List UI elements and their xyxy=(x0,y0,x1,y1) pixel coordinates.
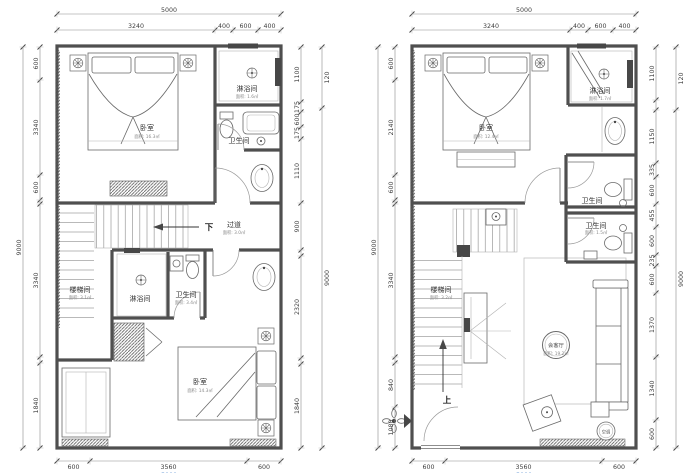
svg-text:600: 600 xyxy=(258,464,270,471)
room-label: 卫生间 xyxy=(176,290,197,299)
room-area: 面积: 16.3㎡ xyxy=(134,133,160,140)
nightstand-lamp-icon xyxy=(180,55,196,71)
svg-text:400: 400 xyxy=(218,23,230,30)
svg-text:600: 600 xyxy=(613,464,625,471)
floor-plan-page: 卧室 面积: 16.3㎡ 淋浴间 面积: 1.6㎡ 卫生间 下 过道 面积: 3… xyxy=(0,0,694,473)
svg-text:600: 600 xyxy=(649,273,656,285)
svg-text:1840: 1840 xyxy=(33,397,40,413)
nightstand-lamp-icon xyxy=(425,55,441,71)
room-label: 会客厅 xyxy=(548,341,565,349)
dim-right-chain-right: 1100115033560045560023560013701340600 xyxy=(649,45,660,451)
svg-text:175: 175 xyxy=(294,101,301,113)
svg-text:600: 600 xyxy=(67,464,79,471)
svg-text:600: 600 xyxy=(649,428,656,440)
room-area: 面积: 3.0㎡ xyxy=(223,229,246,236)
dim-top-chain-right: 3240400600400 xyxy=(410,23,639,34)
left-unit-plan: 卧室 面积: 16.3㎡ 淋浴间 面积: 1.6㎡ 卫生间 下 过道 面积: 3… xyxy=(16,7,331,473)
room-area: 面积: 3.1㎡ xyxy=(69,294,92,301)
room-area: 面积: 1.7㎡ xyxy=(589,95,612,102)
entry-marker-icon xyxy=(383,410,413,433)
nightstand-lamp-icon xyxy=(532,55,548,71)
svg-text:600: 600 xyxy=(294,113,301,125)
room-area: 面积: 14.3㎡ xyxy=(187,387,213,394)
left-toilet-mid xyxy=(170,255,199,279)
dim-left-chain-left: 600334060033401840 xyxy=(33,45,44,451)
svg-text:9000: 9000 xyxy=(16,239,23,255)
room-label: 过道 xyxy=(227,220,241,229)
svg-text:1080: 1080 xyxy=(388,419,395,435)
nightstand-lamp-icon xyxy=(70,55,86,71)
svg-text:335: 335 xyxy=(649,164,656,176)
room-label: 淋浴间 xyxy=(237,84,258,93)
svg-text:3340: 3340 xyxy=(33,119,40,135)
nightstand-lamp-icon xyxy=(258,328,274,344)
room-label: 卧室 xyxy=(479,123,493,132)
svg-text:3240: 3240 xyxy=(483,23,499,30)
svg-text:600: 600 xyxy=(388,181,395,193)
dim-top-overall-left: 5000 xyxy=(55,7,284,18)
dim-bottom-chain-left: 6003560600 xyxy=(55,458,284,472)
room-label: 卧室 xyxy=(193,377,207,386)
svg-text:600: 600 xyxy=(239,23,251,30)
right-unit-plan: 空调 卧室 面积: 12.4㎡ 淋浴间 面积: 1.7㎡ 卫生间 卫生间 面积:… xyxy=(371,7,685,473)
dim-left-chain-right: 600214060033408401080 xyxy=(388,45,399,451)
ac-badge: 空调 xyxy=(597,422,615,440)
right-stool xyxy=(523,395,561,432)
entry-door xyxy=(424,407,458,441)
left-vanity-sinks xyxy=(251,165,275,291)
right-bed xyxy=(443,53,530,167)
left-wardrobe xyxy=(62,368,110,437)
svg-text:5000: 5000 xyxy=(516,7,532,14)
svg-text:1340: 1340 xyxy=(649,380,656,396)
shower-head-icon xyxy=(247,68,257,78)
svg-text:9000: 9000 xyxy=(678,271,685,287)
svg-text:600: 600 xyxy=(594,23,606,30)
dim-bottom-chain-right: 6003560600 xyxy=(410,458,639,472)
dim-top-chain-left: 3240400600400 xyxy=(55,23,284,34)
shower-head-icon xyxy=(136,275,146,285)
down-label: 下 xyxy=(205,223,214,233)
dim-left-overall-left: 9000 xyxy=(16,45,27,451)
svg-text:2140: 2140 xyxy=(388,119,395,135)
svg-text:400: 400 xyxy=(263,23,275,30)
room-label: 卫生间 xyxy=(229,136,250,145)
room-area: 面积: 12.4㎡ xyxy=(473,133,499,140)
svg-text:840: 840 xyxy=(388,379,395,391)
svg-text:120: 120 xyxy=(678,72,685,84)
svg-text:175: 175 xyxy=(294,127,301,139)
svg-text:9000: 9000 xyxy=(324,270,331,286)
svg-text:1100: 1100 xyxy=(294,66,301,82)
dim-right-outer-right: 1209000 xyxy=(673,45,686,451)
room-area: 面积: 1.6㎡ xyxy=(236,93,259,100)
svg-text:400: 400 xyxy=(618,23,630,30)
room-label: 卧室 xyxy=(140,123,154,132)
room-label: 卫生间 xyxy=(586,221,607,230)
left-shower-mid xyxy=(117,248,166,316)
svg-text:1110: 1110 xyxy=(294,163,301,179)
svg-text:600: 600 xyxy=(33,181,40,193)
dim-left-overall-right: 9000 xyxy=(371,45,382,451)
svg-text:3560: 3560 xyxy=(160,464,176,471)
svg-text:600: 600 xyxy=(422,464,434,471)
svg-text:1100: 1100 xyxy=(649,65,656,81)
svg-text:400: 400 xyxy=(573,23,585,30)
svg-text:600: 600 xyxy=(33,57,40,69)
svg-text:1840: 1840 xyxy=(294,398,301,414)
svg-text:600: 600 xyxy=(649,235,656,247)
up-label: 上 xyxy=(443,395,452,406)
svg-text:5000: 5000 xyxy=(161,7,177,14)
svg-text:455: 455 xyxy=(649,209,656,221)
dim-top-overall-right: 5000 xyxy=(410,7,639,18)
svg-text:3340: 3340 xyxy=(33,272,40,288)
room-area: 面积: 3.2㎡ xyxy=(430,294,453,301)
room-label: 卫生间 xyxy=(582,196,603,205)
dim-right-outer-left: 1209000 xyxy=(319,45,332,451)
dim-right-chain-left: 1100175600175111090023201840 xyxy=(294,45,305,451)
svg-text:空调: 空调 xyxy=(602,429,611,436)
room-label: 淋浴间 xyxy=(130,294,151,303)
svg-text:9000: 9000 xyxy=(371,239,378,255)
right-screen-object xyxy=(464,293,511,363)
svg-text:1150: 1150 xyxy=(649,128,656,144)
svg-text:900: 900 xyxy=(294,220,301,232)
room-area: 面积: 19.2㎡ xyxy=(543,350,569,357)
room-area: 面积: 3.4㎡ xyxy=(175,299,198,306)
svg-text:3560: 3560 xyxy=(515,464,531,471)
svg-text:3340: 3340 xyxy=(388,272,395,288)
floor-plan-drawing: 卧室 面积: 16.3㎡ 淋浴间 面积: 1.6㎡ 卫生间 下 过道 面积: 3… xyxy=(0,0,694,473)
svg-text:1370: 1370 xyxy=(649,317,656,333)
svg-text:3240: 3240 xyxy=(128,23,144,30)
room-label: 楼梯间 xyxy=(70,285,91,294)
svg-text:600: 600 xyxy=(388,57,395,69)
nightstand-lamp-icon xyxy=(258,420,274,436)
right-vanity xyxy=(602,107,625,152)
svg-text:2320: 2320 xyxy=(294,299,301,315)
svg-text:600: 600 xyxy=(649,184,656,196)
right-bedroom-door xyxy=(525,168,560,203)
right-sofa xyxy=(591,280,628,417)
left-bed-top xyxy=(88,53,178,150)
svg-text:120: 120 xyxy=(324,71,331,83)
room-label: 淋浴间 xyxy=(590,86,611,95)
shower-head-icon xyxy=(599,69,609,79)
room-area: 面积: 1.5㎡ xyxy=(585,229,608,236)
left-shower-top xyxy=(219,51,281,101)
room-label: 楼梯间 xyxy=(431,285,452,294)
svg-text:235: 235 xyxy=(649,254,656,266)
